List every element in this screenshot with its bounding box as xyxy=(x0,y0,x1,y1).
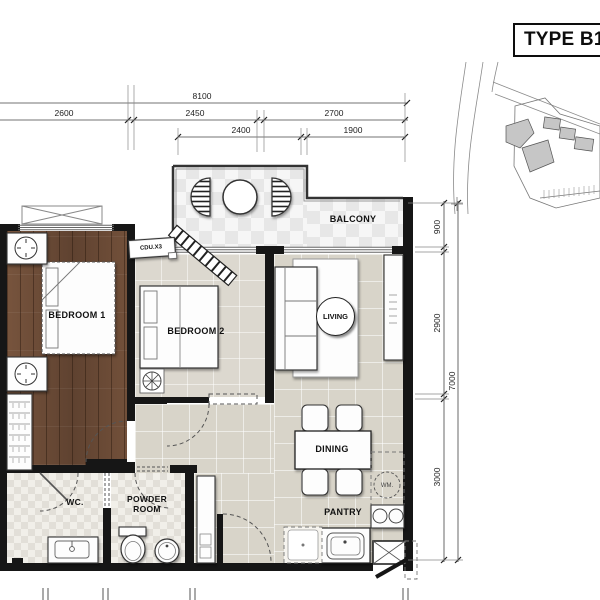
dim-top-seg-3: 2700 xyxy=(325,108,344,118)
balcony-furniture xyxy=(191,178,291,216)
dining-chair xyxy=(336,405,362,431)
bottom-dimension-ticks xyxy=(43,588,408,600)
overhead-cabinet xyxy=(209,394,257,404)
door-wc-leaf xyxy=(40,473,67,500)
dim-top-sub-2: 1900 xyxy=(344,125,363,135)
dim-right-seg-1: 900 xyxy=(432,220,442,234)
room-label-wc: WC. xyxy=(66,497,83,507)
door-bedroom1 xyxy=(86,421,127,462)
drying-rack xyxy=(169,225,237,285)
dim-right-seg-3: 3000 xyxy=(432,468,442,487)
toilet xyxy=(119,527,146,563)
wardrobe xyxy=(7,394,32,470)
dim-right-seg-2: 2900 xyxy=(432,314,442,333)
dim-top-overall: 8100 xyxy=(193,91,212,101)
sofa xyxy=(275,267,317,370)
key-plan-marker xyxy=(451,197,463,211)
dim-right-overall: 7000 xyxy=(447,372,457,391)
nightstand-top xyxy=(7,233,47,264)
room-label-bedroom2: BEDROOM 2 xyxy=(167,326,224,336)
washing-machine xyxy=(371,452,404,506)
room-label-powder-room: POWDER ROOM xyxy=(114,495,180,515)
round-basin xyxy=(155,539,179,563)
dining-chair xyxy=(336,469,362,495)
room-label-living: LIVING xyxy=(316,297,355,336)
dim-top-seg-2: 2450 xyxy=(186,108,205,118)
balcony-chair-right xyxy=(272,178,291,216)
washing-machine-label: WM. xyxy=(381,483,393,489)
dining-chair xyxy=(302,469,328,495)
kitchen-counter xyxy=(321,528,370,563)
dim-top-sub-1: 2400 xyxy=(232,125,251,135)
stove xyxy=(371,505,404,528)
fridge xyxy=(284,527,322,563)
plan-linework xyxy=(0,0,600,600)
dim-top-seg-1: 2600 xyxy=(55,108,74,118)
ac-ledge-box xyxy=(22,206,102,224)
dining-chair xyxy=(302,405,328,431)
vanity-sink xyxy=(48,537,98,563)
key-plan xyxy=(451,62,600,214)
key-plan-buildings xyxy=(506,117,594,172)
room-label-pantry: PANTRY xyxy=(324,507,362,517)
ceiling-fan-symbol xyxy=(140,369,164,393)
room-label-balcony: BALCONY xyxy=(330,214,377,224)
balcony-chair-left xyxy=(191,178,210,216)
tv-console xyxy=(384,255,403,360)
bed-1 xyxy=(42,262,115,354)
living-label-text: LIVING xyxy=(323,312,348,321)
door-pantry xyxy=(223,514,271,562)
balcony-table xyxy=(223,180,257,214)
room-label-dining: DINING xyxy=(315,444,348,454)
floorplan-canvas: TYPE B1- BEDROOM 1 BEDROOM 2 BALCONY DIN… xyxy=(0,0,600,600)
plan-title: TYPE B1- xyxy=(513,23,600,57)
nightstand-bottom xyxy=(7,357,47,391)
room-label-bedroom1: BEDROOM 1 xyxy=(48,310,105,320)
door-bedroom2 xyxy=(167,404,209,446)
pantry-cabinet xyxy=(197,476,215,563)
